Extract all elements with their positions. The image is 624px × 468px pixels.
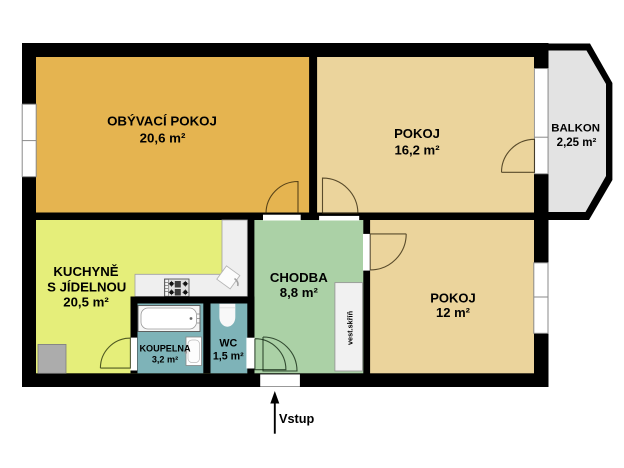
svg-text:KOUPELNA: KOUPELNA (139, 343, 190, 353)
svg-text:Vstup: Vstup (279, 412, 314, 426)
svg-text:vest.skříň: vest.skříň (346, 311, 355, 345)
svg-text:12 m²: 12 m² (436, 305, 471, 320)
svg-text:1,5 m²: 1,5 m² (213, 351, 244, 363)
svg-text:S JÍDELNOU: S JÍDELNOU (47, 280, 126, 295)
svg-text:CHODBA: CHODBA (270, 270, 328, 285)
svg-text:8,8 m²: 8,8 m² (280, 285, 319, 300)
svg-text:16,2 m²: 16,2 m² (394, 142, 440, 157)
svg-text:OBÝVACÍ POKOJ: OBÝVACÍ POKOJ (107, 114, 217, 129)
svg-text:3,2 m²: 3,2 m² (152, 355, 178, 365)
svg-text:POKOJ: POKOJ (394, 126, 440, 141)
svg-text:20,5 m²: 20,5 m² (63, 295, 109, 310)
svg-text:20,6 m²: 20,6 m² (140, 130, 186, 145)
svg-text:POKOJ: POKOJ (430, 290, 476, 305)
svg-text:BALKON: BALKON (551, 122, 600, 134)
svg-text:WC: WC (219, 338, 237, 350)
svg-text:KUCHYNĚ: KUCHYNĚ (53, 264, 118, 279)
svg-text:2,25 m²: 2,25 m² (557, 137, 597, 149)
